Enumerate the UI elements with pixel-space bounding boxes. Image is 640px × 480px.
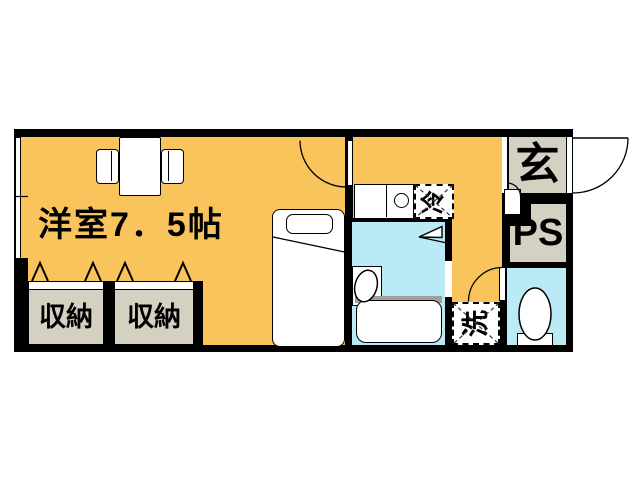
entrance-inner-door-arc — [507, 183, 521, 197]
linework-overlay — [0, 0, 640, 480]
closet-fold-marker — [85, 263, 101, 281]
refrigerator-space-cross — [415, 185, 453, 218]
entrance-door-swing-arc — [573, 138, 628, 193]
toilet-door-swing-arc — [469, 268, 503, 302]
main-door-swing-arc — [300, 141, 347, 188]
bed-blanket-line — [273, 237, 345, 252]
closet-fold-marker — [32, 263, 48, 281]
closet-fold-marker — [117, 263, 133, 281]
closet-fold-marker — [175, 263, 191, 281]
toilet-bowl — [519, 288, 551, 340]
floorplan: 冷 洗 玄 PS 収納 収納 洋室7．5帖 — [0, 0, 640, 480]
washer-space-cross — [453, 303, 499, 344]
bath-door-triangle — [419, 227, 442, 238]
washbasin-bowl — [351, 268, 381, 305]
